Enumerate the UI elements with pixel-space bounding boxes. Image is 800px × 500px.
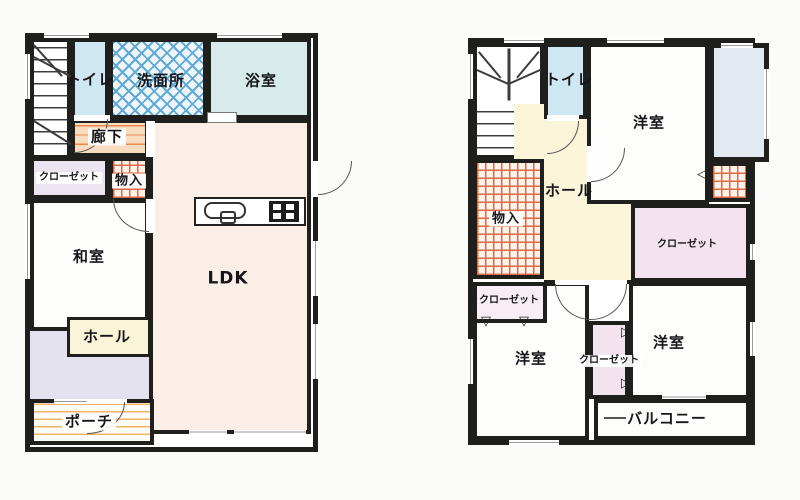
window-marker [44,33,89,38]
door-arc-hall-right-2f [591,284,627,320]
room-storage-right-2f [709,162,750,202]
label-toilet-1f: トイレ [66,73,114,88]
label-porch-1f: ポーチ [62,414,116,431]
label-bathroom-1f: 浴室 [245,74,277,89]
window-marker [468,54,473,99]
label-storage-1f: 物入 [112,174,146,189]
window-marker [509,440,559,445]
window-marker [313,241,318,296]
fold-door-icon: ▽ [481,315,491,328]
sink-icon [204,202,246,219]
window-marker [662,395,706,399]
label-bedroom-top-2f: 洋室 [633,116,665,131]
fold-door-icon: ◁ [697,168,707,181]
label-bedroom-left-2f: 洋室 [515,352,547,367]
stair-line [508,69,542,85]
stove-icon [269,201,299,222]
window-marker [504,38,544,43]
stair-divider [508,49,511,101]
label-balcony-2f: バルコニー [627,412,707,427]
first-floor-plan: トイレ 洗面所 浴室 廊下 クローゼット 物入 和室 LDK ホール ポーチ [25,33,318,452]
label-toilet-2f: トイレ [545,73,593,88]
window-marker [234,430,306,434]
label-corridor-1f: 廊下 [88,129,126,146]
label-storage-2f: 物入 [489,212,523,227]
stair-line [477,69,511,85]
window-marker [468,339,473,384]
label-closet-middle-2f: クローゼット [576,355,642,367]
label-ldk-1f: LDK [207,271,248,288]
label-hall-2f: ホール [545,184,593,199]
stairs-1f [30,38,71,159]
label-bedroom-right-2f: 洋室 [653,336,685,351]
label-japanese-1f: 和室 [73,250,105,265]
window-marker [721,43,753,48]
window-marker [764,69,769,139]
stair-landing-2f [514,104,544,159]
window-marker [217,33,282,38]
second-floor-plan: ▽ ▽ ▷ ▷ ◁ トイレ 洋室 ホール 物入 クローゼット クローゼット 洋室… [468,38,755,445]
opening-corridor-ldk [146,121,155,157]
hall-lower-2f [544,204,631,284]
label-hall-1f: ホール [83,330,131,345]
window-marker [25,54,30,99]
fold-door-icon: ▷ [621,377,631,390]
label-washroom-1f: 洗面所 [137,74,185,89]
fold-door-icon: ▽ [519,315,529,328]
window-marker [750,322,755,356]
label-closet-1f: クローゼット [36,172,102,184]
room-bluegray-2f [709,43,769,162]
balcony-rail-mark [604,417,626,419]
window-marker [54,399,87,404]
window-marker [189,430,227,434]
room-bedroom-right-2f [629,282,750,399]
stair-line [33,44,62,76]
fold-door-icon: ▷ [621,326,631,339]
label-closet-right-2f: クローゼット [657,240,717,250]
window-marker [313,324,318,379]
window-marker [750,244,755,260]
label-closet-left-2f: クローゼット [479,296,539,306]
bath-folding-door [207,112,237,123]
kitchen-counter [194,197,306,226]
window-marker [25,204,30,279]
door-arc-back-door [318,161,352,195]
stair-line [34,120,74,146]
window-marker [607,38,664,43]
